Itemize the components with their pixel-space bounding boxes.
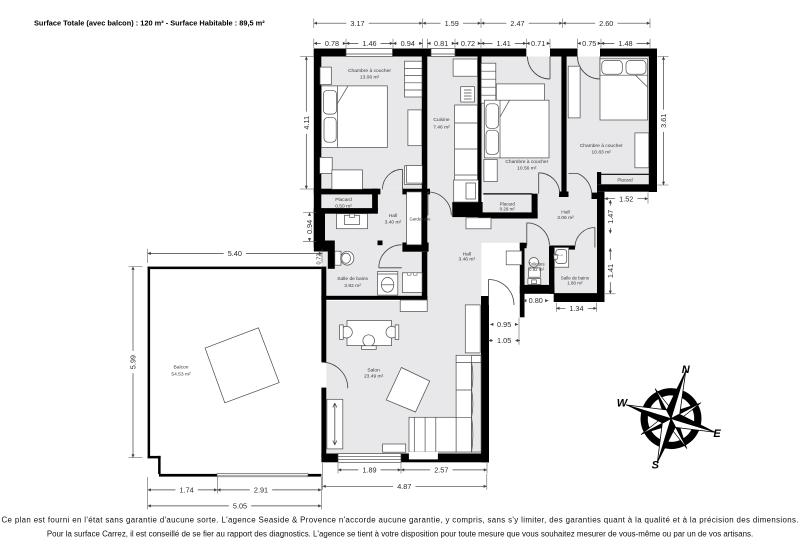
- svg-text:5.40: 5.40: [228, 249, 242, 258]
- svg-text:Placard: Placard: [617, 178, 633, 183]
- svg-text:4.11: 4.11: [302, 116, 311, 130]
- svg-text:10.56 m²: 10.56 m²: [517, 166, 537, 172]
- svg-text:Cuisine: Cuisine: [433, 117, 450, 123]
- svg-text:3.46 m²: 3.46 m²: [459, 257, 476, 263]
- svg-text:0.78: 0.78: [325, 39, 339, 48]
- svg-text:E: E: [713, 428, 721, 440]
- svg-text:Ce plan est fourni en l'état s: Ce plan est fourni en l'état sans garant…: [2, 515, 799, 524]
- svg-text:5.05: 5.05: [233, 502, 247, 511]
- svg-text:2.60: 2.60: [599, 19, 613, 28]
- svg-text:0.29 m²: 0.29 m²: [500, 207, 516, 212]
- svg-text:7.46 m²: 7.46 m²: [433, 125, 450, 131]
- svg-text:10.83 m²: 10.83 m²: [592, 149, 612, 155]
- svg-text:1.52: 1.52: [619, 194, 633, 203]
- svg-text:0.81: 0.81: [434, 39, 448, 48]
- svg-text:4.87: 4.87: [397, 482, 411, 491]
- svg-text:3.82 m²: 3.82 m²: [344, 283, 361, 289]
- svg-text:3.06 m²: 3.06 m²: [557, 215, 574, 221]
- svg-text:13.06 m²: 13.06 m²: [360, 75, 380, 81]
- svg-text:1.74: 1.74: [179, 486, 193, 495]
- svg-text:1.47: 1.47: [606, 210, 615, 224]
- svg-text:3.17: 3.17: [350, 19, 364, 28]
- svg-text:2.57: 2.57: [434, 466, 448, 475]
- svg-text:5.99: 5.99: [129, 355, 138, 369]
- svg-text:Salle de bains: Salle de bains: [337, 276, 368, 282]
- svg-text:0.80: 0.80: [529, 296, 543, 305]
- svg-text:1.80 m²: 1.80 m²: [567, 281, 583, 286]
- svg-text:Hall: Hall: [561, 209, 569, 215]
- svg-text:1.41: 1.41: [497, 39, 511, 48]
- svg-text:Salon: Salon: [367, 367, 380, 373]
- svg-text:1.46: 1.46: [362, 39, 376, 48]
- svg-text:1.89: 1.89: [362, 466, 376, 475]
- svg-text:0.71: 0.71: [531, 39, 545, 48]
- svg-text:2.47: 2.47: [510, 19, 524, 28]
- svg-text:2.91: 2.91: [254, 486, 268, 495]
- svg-text:54.53 m²: 54.53 m²: [171, 372, 191, 378]
- svg-text:Chambre à coucher: Chambre à coucher: [580, 143, 623, 149]
- svg-text:1.34: 1.34: [569, 304, 583, 313]
- svg-text:Chambre à coucher: Chambre à coucher: [348, 68, 391, 74]
- svg-text:3.40 m²: 3.40 m²: [385, 219, 402, 225]
- svg-text:1.48: 1.48: [618, 39, 632, 48]
- svg-text:1.05: 1.05: [497, 336, 511, 345]
- svg-text:Surface Totale (avec balcon) :: Surface Totale (avec balcon) : 120 m² - …: [34, 18, 265, 27]
- svg-text:N: N: [682, 364, 691, 376]
- svg-text:1.59: 1.59: [445, 19, 459, 28]
- svg-text:23.49 m²: 23.49 m²: [364, 374, 384, 380]
- svg-text:Chambre à coucher: Chambre à coucher: [505, 159, 548, 165]
- svg-text:Hall: Hall: [389, 213, 397, 219]
- svg-text:0.72: 0.72: [461, 39, 475, 48]
- svg-text:1.41: 1.41: [606, 264, 615, 278]
- svg-text:Placard: Placard: [335, 197, 352, 203]
- svg-text:0.94: 0.94: [401, 39, 415, 48]
- svg-text:Toilettes: Toilettes: [528, 261, 545, 266]
- svg-text:0.72: 0.72: [316, 254, 322, 265]
- svg-text:S: S: [652, 459, 660, 471]
- svg-text:Hall: Hall: [463, 251, 471, 257]
- svg-text:Pour la surface Carrez, il est: Pour la surface Carrez, il est conseillé…: [47, 530, 753, 539]
- svg-text:0.50 m²: 0.50 m²: [335, 203, 352, 209]
- svg-text:Lave-m.: Lave-m.: [553, 253, 564, 257]
- svg-text:Balcon: Balcon: [174, 365, 189, 371]
- svg-text:Garde-robe: Garde-robe: [410, 217, 432, 222]
- svg-text:0.92 m²: 0.92 m²: [529, 267, 544, 272]
- svg-text:0.95: 0.95: [497, 320, 511, 329]
- svg-text:W: W: [617, 398, 629, 410]
- svg-text:3.61: 3.61: [659, 114, 668, 128]
- svg-text:0.75: 0.75: [582, 39, 596, 48]
- svg-text:0.94: 0.94: [305, 220, 314, 234]
